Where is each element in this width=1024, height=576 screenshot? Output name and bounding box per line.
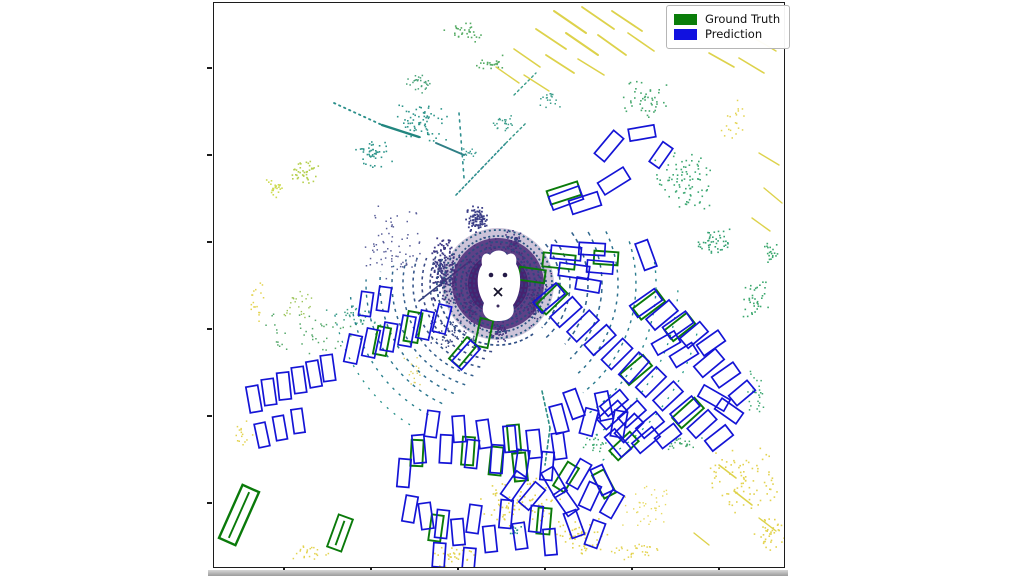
prediction-box xyxy=(584,520,605,549)
prediction-box xyxy=(452,340,480,370)
prediction-box xyxy=(628,125,656,141)
prediction-box xyxy=(402,495,418,523)
prediction-box xyxy=(563,389,585,420)
prediction-box xyxy=(320,354,336,381)
prediction-box xyxy=(705,425,733,451)
ground-truth-box xyxy=(594,251,619,266)
ground-truth-box xyxy=(672,398,704,428)
prediction-box xyxy=(344,334,363,364)
prediction-box xyxy=(635,240,657,271)
ground-truth-swatch xyxy=(674,14,697,25)
prediction-box xyxy=(499,500,513,529)
prediction-box xyxy=(526,429,542,458)
lidar-scatter-plot xyxy=(214,3,784,567)
ground-truth-box xyxy=(507,425,521,452)
prediction-box xyxy=(579,408,598,436)
y-axis-tick xyxy=(207,154,212,156)
prediction-box xyxy=(439,435,452,464)
ground-truth-boxes xyxy=(219,181,704,551)
prediction-box xyxy=(512,522,528,549)
legend-item-prediction: Prediction xyxy=(674,28,780,41)
legend-item-ground-truth: Ground Truth xyxy=(674,13,780,26)
prediction-box xyxy=(551,432,567,459)
prediction-box xyxy=(549,404,569,434)
prediction-box xyxy=(630,289,663,318)
prediction-box xyxy=(254,422,270,448)
prediction-box xyxy=(466,504,482,533)
prediction-box xyxy=(729,380,756,405)
prediction-box xyxy=(277,372,292,400)
prediction-box xyxy=(575,277,601,293)
prediction-boxes xyxy=(246,125,756,567)
y-axis-tick xyxy=(207,415,212,417)
figure-canvas: Ground Truth Prediction xyxy=(0,0,1024,576)
prediction-label: Prediction xyxy=(705,28,762,41)
prediction-box xyxy=(483,525,498,552)
prediction-box xyxy=(424,410,440,437)
prediction-box xyxy=(376,286,391,311)
prediction-box xyxy=(291,408,305,433)
prediction-box xyxy=(397,459,411,488)
prediction-box xyxy=(558,262,590,279)
legend: Ground Truth Prediction xyxy=(666,5,790,49)
prediction-box xyxy=(553,488,579,517)
prediction-box xyxy=(579,242,606,255)
prediction-box xyxy=(261,378,277,405)
bottom-crop-strip xyxy=(208,570,788,576)
prediction-box xyxy=(306,360,322,388)
prediction-box xyxy=(567,310,599,342)
prediction-box xyxy=(418,502,434,529)
y-axis-tick xyxy=(207,67,212,69)
prediction-box xyxy=(680,322,708,349)
ground-truth-box xyxy=(633,290,665,319)
ground-truth-label: Ground Truth xyxy=(705,13,780,26)
y-axis-tick xyxy=(207,502,212,504)
ground-truth-box xyxy=(219,485,259,545)
prediction-box xyxy=(272,415,287,441)
prediction-box xyxy=(452,416,466,443)
prediction-swatch xyxy=(674,29,697,40)
y-axis-tick xyxy=(207,328,212,330)
prediction-box xyxy=(503,426,517,453)
plot-area: Ground Truth Prediction xyxy=(213,2,785,568)
prediction-box xyxy=(451,519,465,546)
y-axis-tick xyxy=(207,241,212,243)
prediction-box xyxy=(594,130,623,161)
prediction-box xyxy=(715,398,744,424)
ground-truth-box xyxy=(327,514,353,551)
prediction-box xyxy=(598,167,631,195)
prediction-box xyxy=(246,385,262,413)
prediction-box xyxy=(291,366,307,393)
prediction-box xyxy=(649,142,673,169)
